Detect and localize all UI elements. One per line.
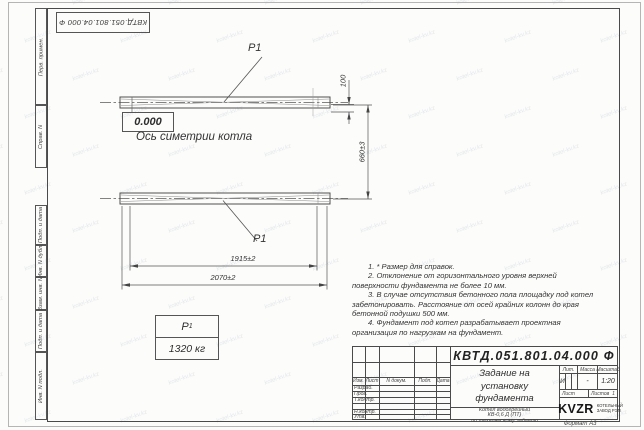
tb-row-tkontr: Т.контр. [352, 397, 379, 403]
level-mark-box: 0.000 [122, 112, 174, 132]
tb-title-line: фундамента [450, 393, 559, 406]
dim-text-inner-width: 1915±2 [213, 254, 273, 263]
tb-sheets-label: Листов [589, 390, 609, 397]
tb-col-list: Лист [365, 377, 379, 385]
note-item: 2. Отклонение от горизонтального уровня … [352, 271, 604, 290]
doc-number: КВТД.051.801.04.000 Ф [450, 346, 618, 366]
notes-block: 1. * Размер для справок. 2. Отклонение о… [352, 262, 604, 337]
note-item: 3. В случае отсутствия бетонного пола пл… [352, 290, 604, 318]
tb-subtitle-line: по техническому заданию [450, 419, 559, 425]
tb-mass-header: Масса [578, 366, 598, 374]
tb-col-doc: N докум. [379, 377, 414, 385]
dim-text-outer-width: 2070±2 [195, 273, 251, 282]
tb-row-utv: Утв. [352, 414, 379, 420]
tb-col-data: Дата [436, 377, 450, 385]
note-item: 1. * Размер для справок. [352, 262, 604, 271]
p1-label-top: P1 [248, 42, 261, 54]
p1-leaders [223, 57, 262, 241]
company-logo: KVZR КОТЕЛЬНЫЙ ЗАВОД РЭП [560, 398, 618, 420]
boiler-symmetry-axis-label: Ось симетрии котла [136, 131, 252, 143]
tb-mass-value: - [578, 374, 598, 389]
dim-text-vertical-gap: 660±3 [358, 142, 367, 163]
tb-sheet-label: Лист [560, 390, 589, 397]
tb-title-cell: Задание на установку фундамента Котел во… [450, 366, 560, 420]
mass-symbol-letter: P [181, 321, 188, 333]
tb-scale-value: 1:20 [598, 374, 618, 389]
tb-title-line: установку [450, 381, 559, 394]
mass-table: P1 1320 кг [155, 315, 219, 360]
tb-hline [352, 403, 450, 404]
tb-lit-header: Лит. [560, 366, 578, 374]
dim-text-thickness: 100 [339, 75, 348, 88]
mass-value: 1320 кг [156, 338, 218, 359]
note-item: 4. Фундамент под котел разрабатывает про… [352, 318, 604, 337]
level-mark-value: 0.000 [134, 116, 162, 128]
mass-symbol-sub: 1 [189, 323, 193, 330]
logo-text: KVZR [558, 402, 594, 416]
tb-hline [352, 362, 450, 363]
format-label: Формат А3 [545, 421, 615, 427]
drawing-sheet: kotel-kv.kzkotel-kv.kzkotel-kv.kzkotel-k… [0, 0, 644, 430]
mass-symbol: P1 [156, 316, 218, 338]
tb-scale-header: Масштаб [598, 366, 618, 374]
p1-label-bottom: P1 [253, 233, 266, 245]
logo-caption-line: ЗАВОД РЭП [597, 409, 623, 414]
tb-col-podp: Подп. [414, 377, 436, 385]
tb-title-line: Задание на [450, 368, 559, 381]
tb-col-izm: Изм. [352, 377, 365, 385]
tb-sheets-value: 1 [609, 390, 618, 397]
